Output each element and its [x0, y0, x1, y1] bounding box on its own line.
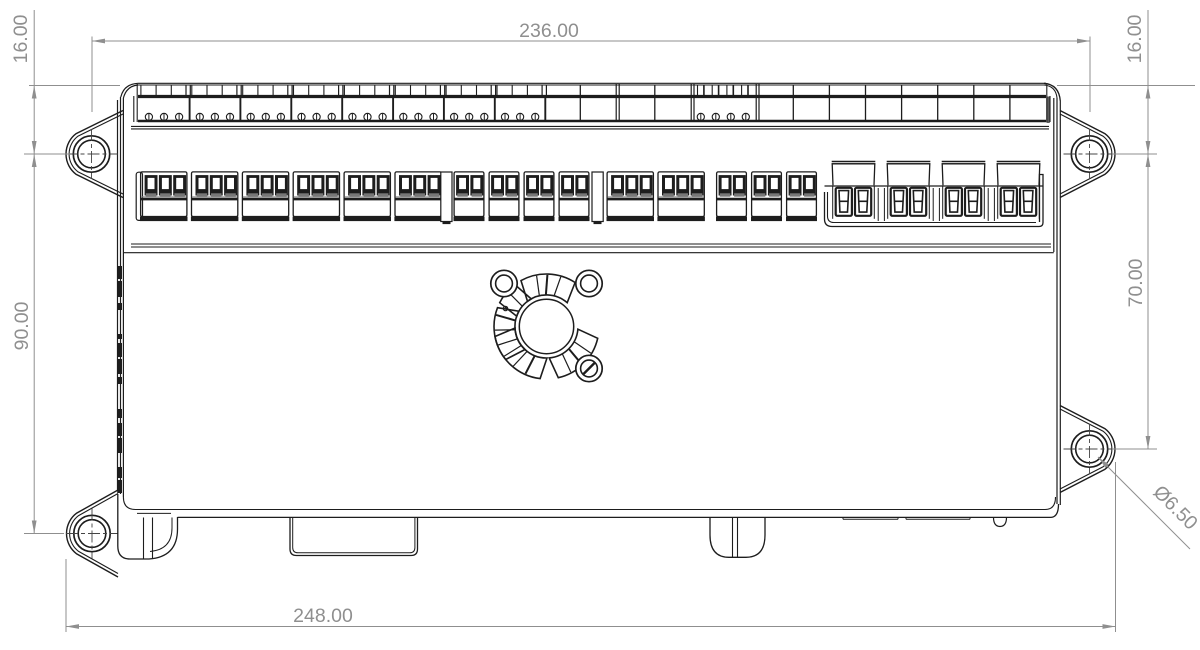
- svg-text:70.00: 70.00: [1125, 258, 1147, 307]
- svg-text:16.00: 16.00: [10, 14, 32, 63]
- svg-text:90.00: 90.00: [11, 301, 33, 350]
- svg-text:236.00: 236.00: [519, 20, 579, 42]
- svg-text:248.00: 248.00: [293, 605, 353, 627]
- svg-text:16.00: 16.00: [1124, 14, 1146, 63]
